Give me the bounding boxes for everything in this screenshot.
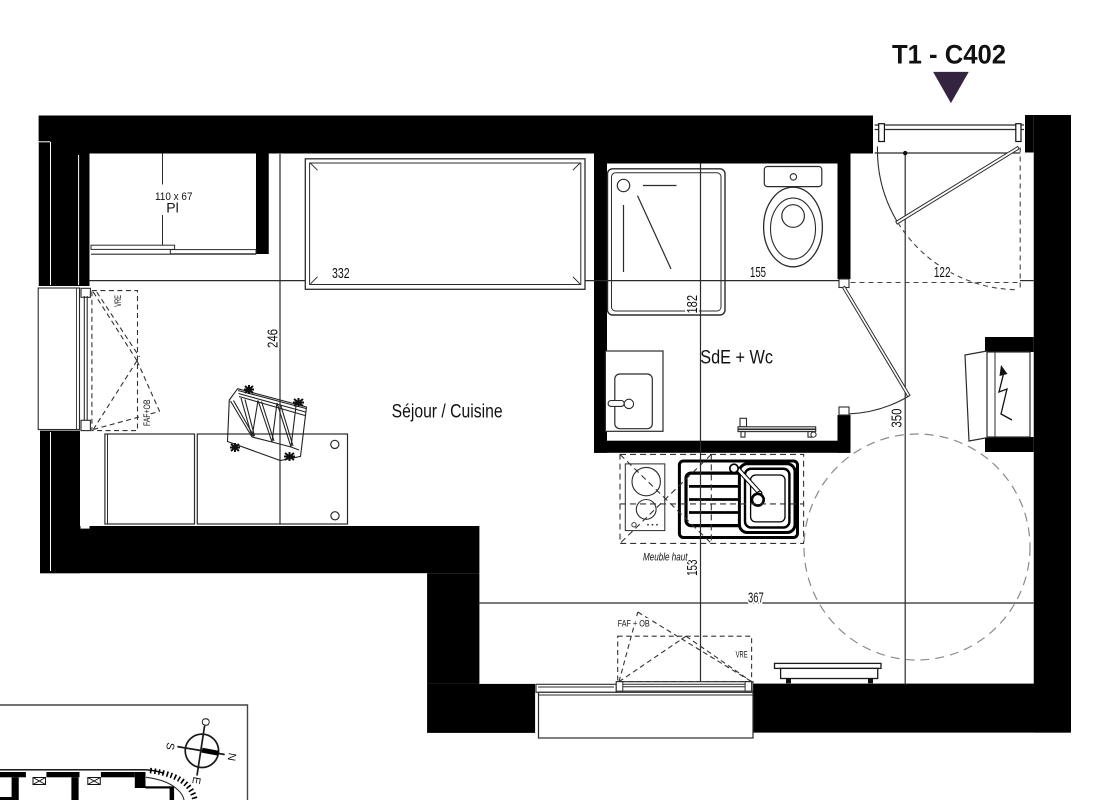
svg-text:122: 122 — [934, 265, 951, 281]
svg-text:350: 350 — [890, 409, 906, 428]
svg-text:FAF + OB: FAF + OB — [618, 619, 650, 630]
svg-text:155: 155 — [750, 265, 766, 281]
svg-text:VRE: VRE — [113, 295, 124, 307]
svg-text:Séjour / Cuisine: Séjour / Cuisine — [392, 402, 503, 423]
svg-text:FAF+OB: FAF+OB — [142, 400, 153, 427]
svg-text:VRE: VRE — [736, 650, 748, 661]
svg-text:SdE + Wc: SdE + Wc — [700, 348, 773, 369]
svg-text:Pl: Pl — [166, 201, 179, 216]
svg-text:T1 - C402: T1 - C402 — [892, 40, 1006, 70]
svg-text:332: 332 — [332, 266, 350, 282]
svg-text:Meuble haut: Meuble haut — [643, 552, 688, 564]
svg-text:182: 182 — [685, 295, 701, 314]
svg-text:367: 367 — [748, 591, 764, 607]
svg-text:246: 246 — [266, 329, 282, 348]
